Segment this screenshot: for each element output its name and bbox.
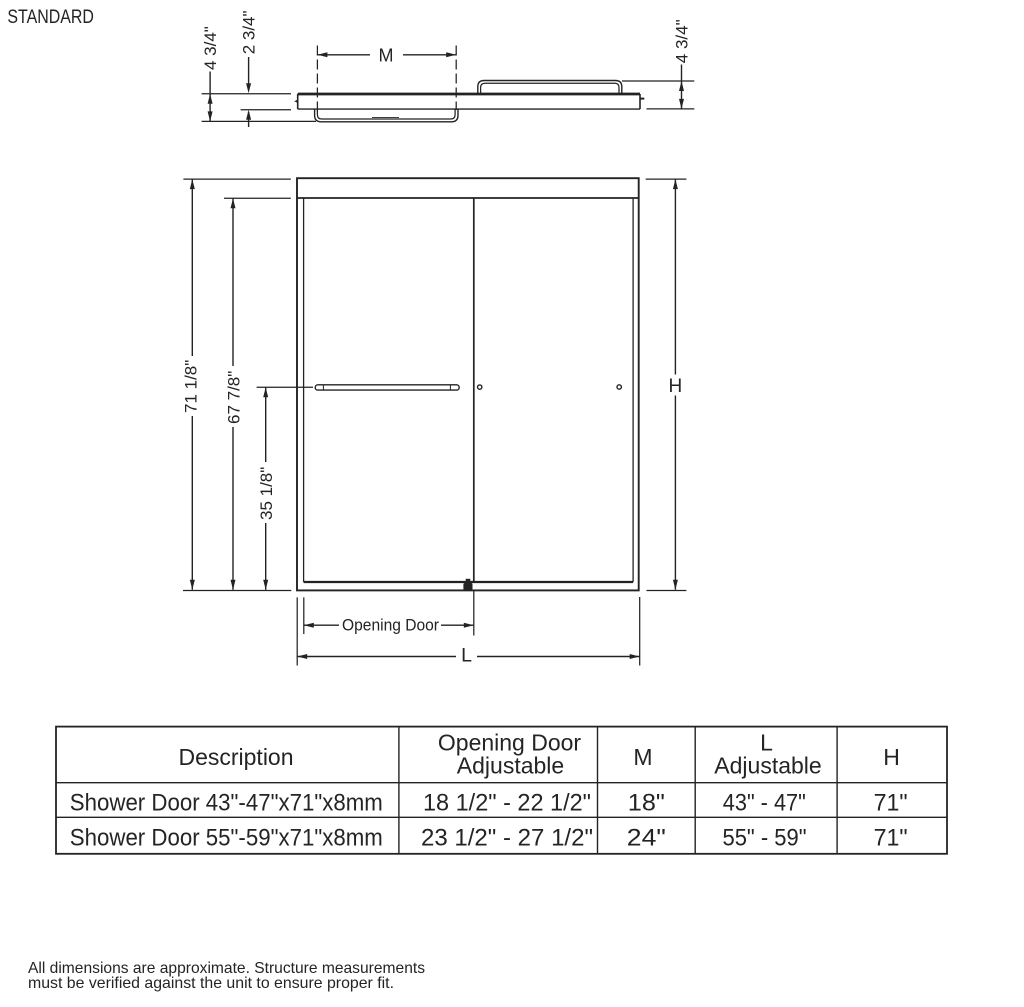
svg-text:Opening Door: Opening Door bbox=[342, 616, 439, 635]
svg-text:Adjustable: Adjustable bbox=[714, 753, 821, 779]
svg-text:4 3/4": 4 3/4" bbox=[673, 19, 692, 63]
svg-text:Shower Door 43"-47"x71"x8mm: Shower Door 43"-47"x71"x8mm bbox=[70, 790, 383, 817]
svg-text:18": 18" bbox=[628, 790, 665, 817]
svg-text:L: L bbox=[461, 645, 472, 667]
svg-text:67 7/8": 67 7/8" bbox=[225, 371, 244, 424]
svg-text:2 3/4": 2 3/4" bbox=[240, 10, 259, 54]
svg-text:STANDARD: STANDARD bbox=[7, 6, 94, 28]
svg-text:24": 24" bbox=[627, 825, 666, 852]
svg-text:71": 71" bbox=[874, 790, 908, 817]
svg-text:H: H bbox=[883, 744, 900, 770]
svg-text:35 1/8": 35 1/8" bbox=[257, 467, 276, 520]
svg-text:18 1/2" - 22 1/2": 18 1/2" - 22 1/2" bbox=[423, 790, 591, 817]
svg-text:Shower Door 55"-59"x71"x8mm: Shower Door 55"-59"x71"x8mm bbox=[70, 825, 383, 852]
svg-text:M: M bbox=[633, 744, 652, 770]
svg-text:must be verified against the u: must be verified against the unit to ens… bbox=[28, 975, 394, 992]
svg-text:M: M bbox=[379, 46, 394, 66]
svg-text:23 1/2" - 27 1/2": 23 1/2" - 27 1/2" bbox=[421, 825, 593, 852]
svg-text:71": 71" bbox=[874, 825, 908, 852]
svg-text:Adjustable: Adjustable bbox=[457, 753, 564, 779]
svg-text:H: H bbox=[669, 376, 683, 397]
svg-text:55" - 59": 55" - 59" bbox=[723, 825, 807, 852]
svg-text:Description: Description bbox=[178, 744, 293, 770]
svg-text:4 3/4": 4 3/4" bbox=[201, 26, 220, 70]
svg-text:43" - 47": 43" - 47" bbox=[723, 790, 806, 817]
svg-text:71 1/8": 71 1/8" bbox=[182, 360, 201, 413]
